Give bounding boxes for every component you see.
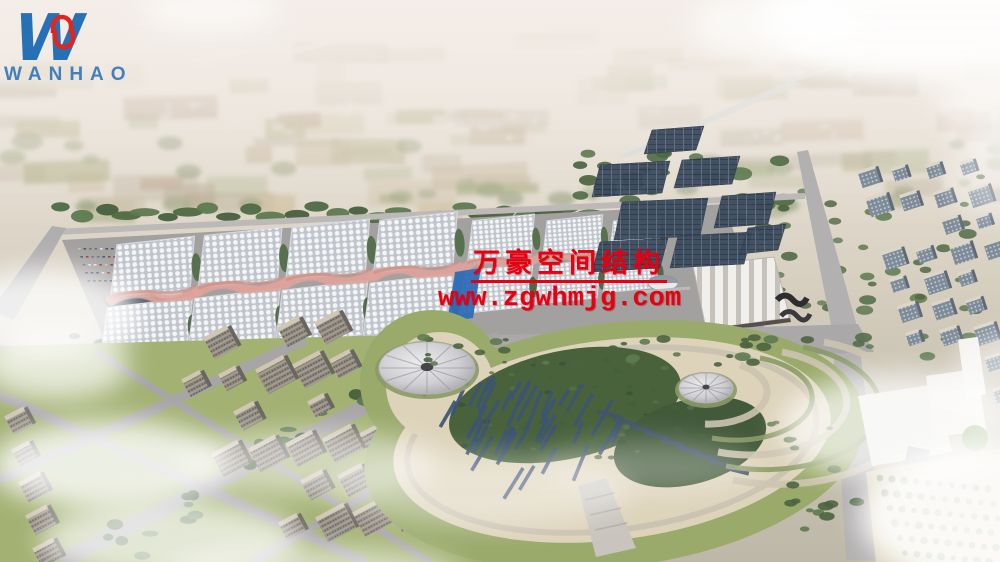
cone-tent-large xyxy=(375,341,479,399)
tree-plaza xyxy=(866,448,1000,562)
aerial-rendering: W WANHAO 万豪空间结构 www.zgwhmjg.com xyxy=(0,0,1000,562)
ribbed-hall xyxy=(693,257,810,333)
atmospheric-haze xyxy=(0,0,1000,232)
rendered-scene xyxy=(0,0,1000,562)
cone-tent-small xyxy=(675,372,737,408)
